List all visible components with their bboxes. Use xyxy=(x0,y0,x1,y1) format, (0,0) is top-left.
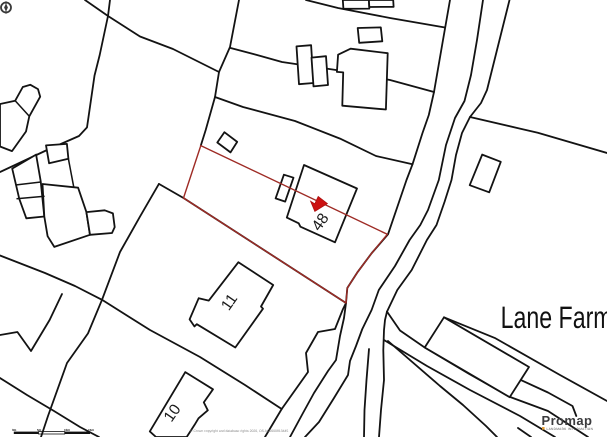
svg-text:LANDMARK INFORMATION: LANDMARK INFORMATION xyxy=(547,427,594,431)
svg-text:10m: 10m xyxy=(64,428,70,432)
svg-text:0m: 0m xyxy=(12,428,17,432)
svg-text:15m: 15m xyxy=(88,428,94,432)
svg-text:5m: 5m xyxy=(37,428,42,432)
svg-text:Promap: Promap xyxy=(542,413,593,428)
svg-text:Lane Farm: Lane Farm xyxy=(501,300,607,335)
svg-text:© Crown copyright and database: © Crown copyright and database rights 20… xyxy=(190,429,288,433)
